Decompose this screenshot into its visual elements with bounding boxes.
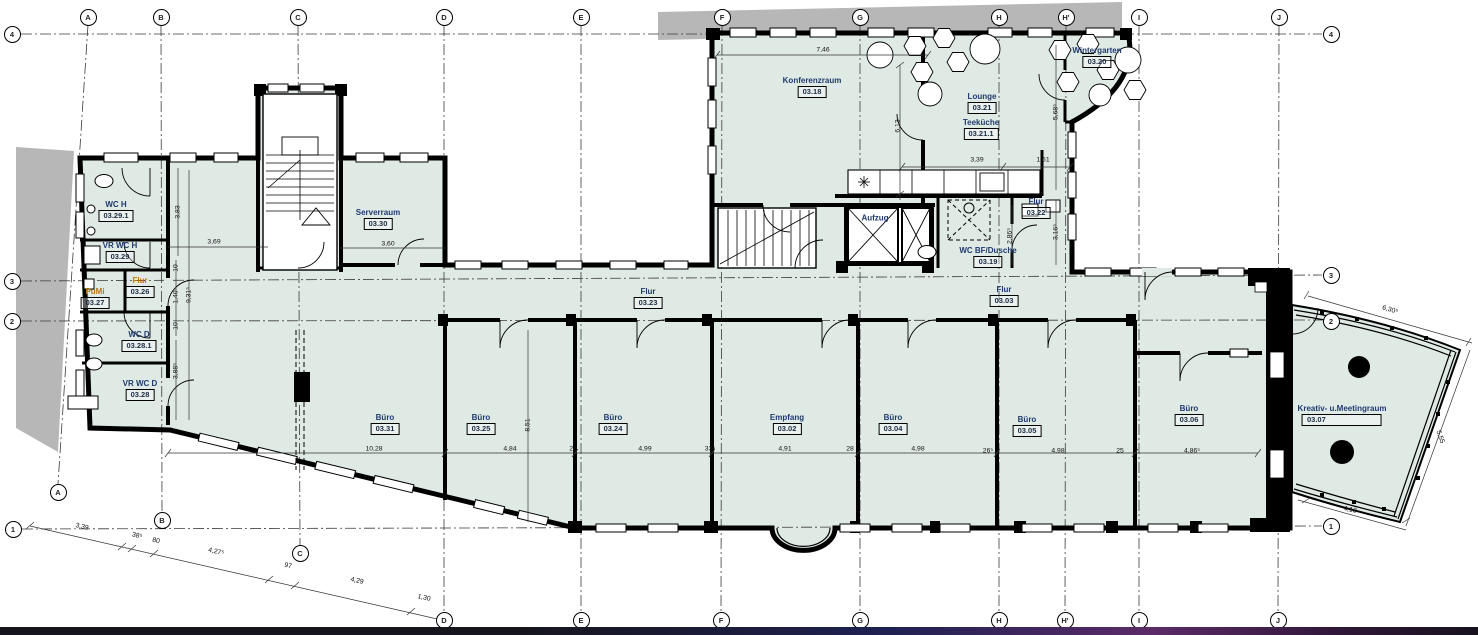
dim-text: 97: [284, 562, 293, 571]
dim-text: 7,46: [816, 47, 829, 54]
stair-tower: [263, 94, 337, 270]
dim-text: 4,98: [911, 446, 924, 453]
taskbar-strip: [0, 627, 1478, 635]
dim-text: 4,91: [778, 446, 791, 453]
wing-stair: [718, 208, 816, 268]
dim-text: 3,83: [175, 205, 182, 218]
grid-bubble-top-i: I: [1131, 9, 1148, 26]
dim-text: 9,31⁵: [186, 287, 193, 303]
grid-bubble-bottom-e: E: [573, 612, 590, 629]
grid-bubble-top-g: G: [852, 9, 869, 26]
dim-text: 25: [1116, 448, 1124, 455]
dim-text: 3,39: [970, 157, 983, 164]
grid-bubble-top-f: F: [714, 9, 731, 26]
grid-bubble-top-h2: H': [1058, 9, 1075, 26]
dim-text: 4,99: [638, 446, 651, 453]
grid-bubble-bottom-d: D: [436, 612, 453, 629]
dim-text: 3,69: [207, 239, 220, 246]
grid-bubble-top-b: B: [153, 9, 170, 26]
dim-text: 5,68⁵: [1053, 104, 1060, 120]
dim-text: 33⁵: [705, 446, 715, 453]
grid-bubble-bottom-b: B: [154, 512, 171, 529]
dim-text: 1,40: [173, 290, 180, 303]
dim-text: 4,84: [503, 446, 516, 453]
grid-bubble-bottom-h: H: [991, 612, 1008, 629]
dim-text: 80: [152, 537, 161, 546]
grid-bubble-left-3: 3: [4, 273, 21, 290]
dim-text: 3,60: [381, 241, 394, 248]
grid-bubble-bottom-f: F: [713, 612, 730, 629]
dim-text: 6,13: [895, 119, 902, 132]
grid-bubble-bottom-h2: H': [1057, 612, 1074, 629]
grid-bubble-left-1: 1: [5, 521, 22, 538]
dim-text: 26: [569, 446, 577, 453]
dim-text: 4,86⁵: [1184, 448, 1200, 455]
grid-bubble-right-4: 4: [1323, 26, 1340, 43]
grid-bubble-left-4: 4: [4, 26, 21, 43]
dim-text: 26⁵: [983, 448, 993, 455]
dim-text: 1,51: [1036, 157, 1049, 164]
floor-plan-drawing: [0, 0, 1478, 635]
dim-text: 10: [173, 264, 180, 272]
dim-text: 10,28: [365, 446, 382, 453]
elevator-label: Aufzug: [861, 214, 888, 223]
grid-bubble-bottom-g: G: [852, 612, 869, 629]
grid-bubble-right-2: 2: [1323, 313, 1340, 330]
grid-bubble-right-3: 3: [1323, 267, 1340, 284]
grid-bubble-right-1: 1: [1323, 518, 1340, 535]
grid-bubble-bottom-i: I: [1131, 612, 1148, 629]
floor-plan-canvas: WC H03.29.1 VR WC H03.29 PuMi03.27 Flur0…: [0, 0, 1478, 635]
grid-bubble-top-a: A: [80, 9, 97, 26]
grid-bubble-left-2: 2: [4, 313, 21, 330]
grid-bubble-bottom-c: C: [292, 545, 309, 562]
dim-text: 4,98: [1051, 448, 1064, 455]
grid-bubble-top-j: J: [1271, 9, 1288, 26]
dim-text: 3,88⁵: [173, 363, 180, 379]
dim-text: 3,16⁵: [1053, 224, 1060, 240]
grid-bubble-top-h: H: [991, 9, 1008, 26]
kitchen-counter: [848, 170, 1040, 194]
grid-bubble-top-d: D: [436, 9, 453, 26]
grid-bubble-top-e: E: [573, 9, 590, 26]
dim-text: 8,51: [525, 418, 532, 431]
dim-text: 10: [173, 322, 180, 330]
grid-bubble-bottom-j: J: [1270, 612, 1287, 629]
grid-bubble-top-c: C: [290, 9, 307, 26]
dim-text: 28: [846, 446, 854, 453]
grid-bubble-bottom-a: A: [50, 484, 67, 501]
dim-text: 2,86⁵: [1007, 228, 1014, 244]
